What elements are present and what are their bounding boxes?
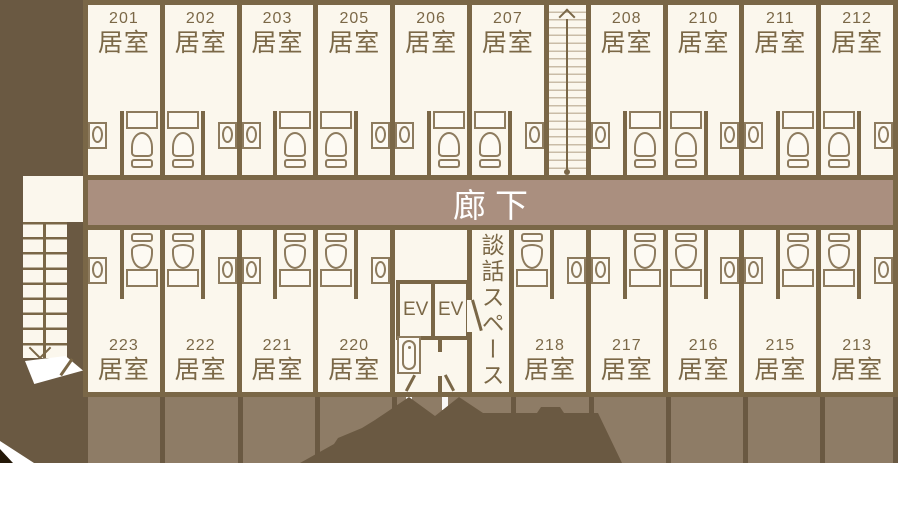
washbasin-bowl — [724, 126, 735, 143]
room-202: 202居室 — [160, 5, 237, 180]
toilet-counter — [782, 111, 814, 129]
toilet-tank-icon — [131, 159, 153, 168]
room-fixtures — [165, 110, 237, 180]
toilet-counter — [474, 111, 506, 129]
room-type-label: 居室 — [514, 357, 586, 383]
top-room-row: 201居室202居室203居室205居室206居室207居室 208居室210居… — [83, 0, 898, 180]
toilet-tank-icon — [828, 233, 850, 242]
room-fixtures — [165, 230, 237, 300]
toilet-tank-icon — [325, 233, 347, 242]
room-type-label: 居室 — [88, 30, 160, 56]
room-207: 207居室 — [467, 5, 544, 180]
washbasin-icon — [591, 122, 610, 149]
room-221: 221居室 — [237, 230, 314, 392]
toilet-counter — [167, 269, 199, 287]
toilet-booth — [668, 111, 708, 180]
room-label: 205居室 — [318, 11, 390, 56]
toilet-bowl-icon — [325, 244, 347, 269]
room-number: 206 — [395, 11, 467, 28]
toilet-tank-icon — [284, 233, 306, 242]
toilet-booth — [821, 230, 861, 299]
washbasin-icon — [218, 257, 237, 284]
corridor-label: 廊下 — [444, 179, 537, 227]
toilet-booth — [165, 111, 205, 180]
room-number: 220 — [318, 338, 390, 355]
room-201: 201居室 — [83, 5, 160, 180]
washbasin-bowl — [246, 126, 257, 143]
washbasin-icon — [720, 257, 739, 284]
washbasin-bowl — [375, 261, 386, 278]
washbasin-icon — [525, 122, 544, 149]
room-number: 202 — [165, 11, 237, 28]
toilet-counter — [279, 269, 311, 287]
room-label: 213居室 — [821, 338, 893, 383]
room-fixtures — [591, 110, 663, 180]
toilet-tank-icon — [438, 159, 460, 168]
toilet-counter — [670, 111, 702, 129]
elevator-1: EV — [400, 284, 431, 336]
toilet-bowl-icon — [325, 132, 347, 157]
washbasin-icon — [88, 257, 107, 284]
room-number: 213 — [821, 338, 893, 355]
washbasin-bowl — [571, 261, 582, 278]
toilet-booth — [318, 111, 358, 180]
room-label: 203居室 — [242, 11, 314, 56]
room-211: 211居室 — [739, 5, 816, 180]
tub-basin — [402, 340, 416, 370]
bottom-room-row: 223居室222居室221居室220居室 EV EV 談話スペース 218居室2… — [83, 230, 898, 397]
room-203: 203居室 — [237, 5, 314, 180]
toilet-booth — [273, 111, 313, 180]
toilet-tank-icon — [479, 159, 501, 168]
toilet-bowl-icon — [284, 244, 306, 269]
toilet-booth — [427, 111, 467, 180]
room-label: 202居室 — [165, 11, 237, 56]
washbasin-bowl — [246, 261, 257, 278]
toilet-bowl-icon — [521, 244, 543, 269]
balcony-wall-line — [238, 397, 243, 463]
balcony-wall-line — [666, 397, 671, 463]
toilet-tank-icon — [787, 159, 809, 168]
room-number: 201 — [88, 11, 160, 28]
room-fixtures — [395, 110, 467, 180]
room-218: 218居室 — [509, 230, 586, 392]
room-fixtures — [472, 110, 544, 180]
toilet-booth — [165, 230, 205, 299]
room-fixtures — [744, 230, 816, 300]
washbasin-bowl — [748, 126, 759, 143]
room-label: 218居室 — [514, 338, 586, 383]
toilet-bowl-icon — [284, 132, 306, 157]
room-205: 205居室 — [313, 5, 390, 180]
room-label: 216居室 — [668, 338, 740, 383]
washbasin-bowl — [595, 126, 606, 143]
toilet-tank-icon — [325, 159, 347, 168]
room-number: 216 — [668, 338, 740, 355]
decor-silhouette — [88, 397, 893, 463]
toilet-booth — [514, 230, 554, 299]
toilet-bowl-icon — [634, 244, 656, 269]
room-number: 221 — [242, 338, 314, 355]
toilet-counter — [670, 269, 702, 287]
room-fixtures — [88, 110, 160, 180]
toilet-counter — [279, 111, 311, 129]
room-type-label: 居室 — [88, 357, 160, 383]
toilet-bowl-icon — [828, 132, 850, 157]
washbasin-bowl — [222, 126, 233, 143]
room-223: 223居室 — [83, 230, 160, 392]
floor-plan: 201居室202居室203居室205居室206居室207居室 208居室210居… — [0, 0, 900, 523]
toilet-bowl-icon — [172, 132, 194, 157]
washbasin-bowl — [92, 126, 103, 143]
washbasin-icon — [218, 122, 237, 149]
stair-divider — [43, 222, 46, 358]
toilet-counter — [126, 111, 158, 129]
toilet-bowl-icon — [675, 244, 697, 269]
washbasin-icon — [371, 257, 390, 284]
room-number: 208 — [591, 11, 663, 28]
room-fixtures — [744, 110, 816, 180]
room-fixtures — [668, 110, 740, 180]
room-type-label: 居室 — [395, 30, 467, 56]
washbasin-icon — [88, 122, 107, 149]
balcony-wall-line — [820, 397, 825, 463]
toilet-tank-icon — [828, 159, 850, 168]
room-number: 211 — [744, 11, 816, 28]
room-type-label: 居室 — [165, 357, 237, 383]
toilet-counter — [320, 269, 352, 287]
toilet-counter — [516, 269, 548, 287]
washbasin-icon — [567, 257, 586, 284]
room-fixtures — [821, 230, 893, 300]
room-type-label: 居室 — [668, 30, 740, 56]
room-number: 217 — [591, 338, 663, 355]
room-type-label: 居室 — [165, 30, 237, 56]
washbasin-icon — [242, 122, 261, 149]
room-label: 201居室 — [88, 11, 160, 56]
balcony-wall-line — [743, 397, 748, 463]
toilet-tank-icon — [521, 233, 543, 242]
staircase-down — [23, 222, 67, 358]
washbasin-icon — [874, 257, 893, 284]
toilet-bowl-icon — [438, 132, 460, 157]
room-fixtures — [242, 110, 314, 180]
room-type-label: 居室 — [472, 30, 544, 56]
room-type-label: 居室 — [318, 357, 390, 383]
room-210: 210居室 — [663, 5, 740, 180]
toilet-bowl-icon — [131, 244, 153, 269]
room-number: 215 — [744, 338, 816, 355]
room-label: 212居室 — [821, 11, 893, 56]
toilet-counter — [629, 269, 661, 287]
toilet-counter — [823, 111, 855, 129]
toilet-booth — [776, 230, 816, 299]
wall-stub — [438, 376, 442, 392]
toilet-bowl-icon — [787, 244, 809, 269]
room-type-label: 居室 — [821, 30, 893, 56]
toilet-tank-icon — [172, 233, 194, 242]
toilet-booth — [623, 111, 663, 180]
room-type-label: 居室 — [821, 357, 893, 383]
room-label: 217居室 — [591, 338, 663, 383]
room-label: 208居室 — [591, 11, 663, 56]
room-label: 220居室 — [318, 338, 390, 383]
room-number: 223 — [88, 338, 160, 355]
washbasin-icon — [371, 122, 390, 149]
room-217: 217居室 — [586, 230, 663, 392]
toilet-bowl-icon — [479, 132, 501, 157]
room-number: 222 — [165, 338, 237, 355]
toilet-booth — [623, 230, 663, 299]
room-fixtures — [242, 230, 314, 300]
washbasin-icon — [395, 122, 414, 149]
toilet-counter — [167, 111, 199, 129]
room-type-label: 居室 — [591, 357, 663, 383]
room-fixtures — [88, 230, 160, 300]
room-213: 213居室 — [816, 230, 898, 392]
room-220: 220居室 — [313, 230, 390, 392]
room-212: 212居室 — [816, 5, 898, 180]
elevator-2: EV — [431, 284, 466, 336]
stair-landing — [23, 176, 83, 222]
toilet-tank-icon — [172, 159, 194, 168]
room-type-label: 居室 — [744, 30, 816, 56]
room-fixtures — [318, 110, 390, 180]
toilet-tank-icon — [787, 233, 809, 242]
room-type-label: 居室 — [318, 30, 390, 56]
washbasin-icon — [744, 257, 763, 284]
toilet-booth — [821, 111, 861, 180]
room-type-label: 居室 — [668, 357, 740, 383]
room-number: 218 — [514, 338, 586, 355]
toilet-bowl-icon — [675, 132, 697, 157]
talk-space-label: 談話スペース — [479, 233, 502, 389]
washbasin-bowl — [92, 261, 103, 278]
washbasin-bowl — [724, 261, 735, 278]
room-label: 222居室 — [165, 338, 237, 383]
toilet-tank-icon — [634, 233, 656, 242]
bathtub-icon — [397, 336, 421, 374]
wall-stub — [438, 336, 442, 352]
elevator-bank: EV EV — [396, 280, 470, 340]
room-fixtures — [318, 230, 390, 300]
toilet-counter — [433, 111, 465, 129]
room-fixtures — [514, 230, 586, 300]
washbasin-bowl — [529, 126, 540, 143]
balcony-wall-line — [160, 397, 165, 463]
room-fixtures — [668, 230, 740, 300]
room-number: 207 — [472, 11, 544, 28]
room-206: 206居室 — [390, 5, 467, 180]
toilet-bowl-icon — [787, 132, 809, 157]
room-type-label: 居室 — [744, 357, 816, 383]
toilet-counter — [823, 269, 855, 287]
toilet-booth — [120, 111, 160, 180]
toilet-bowl-icon — [634, 132, 656, 157]
toilet-booth — [318, 230, 358, 299]
washbasin-bowl — [595, 261, 606, 278]
door-swing-line — [405, 374, 416, 391]
toilet-booth — [273, 230, 313, 299]
room-label: 211居室 — [744, 11, 816, 56]
room-type-label: 居室 — [591, 30, 663, 56]
washbasin-bowl — [399, 126, 410, 143]
washbasin-bowl — [222, 261, 233, 278]
staircase-up — [544, 5, 586, 180]
toilet-bowl-icon — [828, 244, 850, 269]
room-fixtures — [821, 110, 893, 180]
door-swing-line — [444, 374, 455, 391]
toilet-counter — [629, 111, 661, 129]
washbasin-icon — [874, 122, 893, 149]
room-216: 216居室 — [663, 230, 740, 392]
room-215: 215居室 — [739, 230, 816, 392]
room-label: 206居室 — [395, 11, 467, 56]
room-number: 205 — [318, 11, 390, 28]
toilet-tank-icon — [131, 233, 153, 242]
room-type-label: 居室 — [242, 357, 314, 383]
room-label: 215居室 — [744, 338, 816, 383]
room-label: 223居室 — [88, 338, 160, 383]
toilet-booth — [668, 230, 708, 299]
corridor: 廊下 — [83, 175, 898, 230]
toilet-bowl-icon — [172, 244, 194, 269]
room-number: 203 — [242, 11, 314, 28]
utility-block: EV EV 談話スペース — [390, 230, 509, 392]
room-fixtures — [591, 230, 663, 300]
toilet-booth — [776, 111, 816, 180]
toilet-tank-icon — [284, 159, 306, 168]
toilet-booth — [120, 230, 160, 299]
room-label: 221居室 — [242, 338, 314, 383]
stair-arrow-up-icon — [559, 9, 576, 26]
washbasin-bowl — [878, 126, 889, 143]
room-label: 210居室 — [668, 11, 740, 56]
toilet-bowl-icon — [131, 132, 153, 157]
toilet-tank-icon — [675, 159, 697, 168]
washbasin-icon — [744, 122, 763, 149]
toilet-counter — [782, 269, 814, 287]
toilet-counter — [320, 111, 352, 129]
toilet-counter — [126, 269, 158, 287]
tub-drain — [408, 346, 411, 349]
washbasin-icon — [591, 257, 610, 284]
stair-arrow-line — [566, 19, 568, 170]
washbasin-bowl — [878, 261, 889, 278]
room-label: 207居室 — [472, 11, 544, 56]
washbasin-icon — [242, 257, 261, 284]
washbasin-bowl — [748, 261, 759, 278]
toilet-tank-icon — [634, 159, 656, 168]
toilet-tank-icon — [675, 233, 697, 242]
toilet-booth — [472, 111, 512, 180]
room-type-label: 居室 — [242, 30, 314, 56]
washbasin-bowl — [375, 126, 386, 143]
room-222: 222居室 — [160, 230, 237, 392]
room-number: 210 — [668, 11, 740, 28]
washbasin-icon — [720, 122, 739, 149]
room-208: 208居室 — [586, 5, 663, 180]
room-number: 212 — [821, 11, 893, 28]
balcony-strip — [88, 397, 893, 463]
